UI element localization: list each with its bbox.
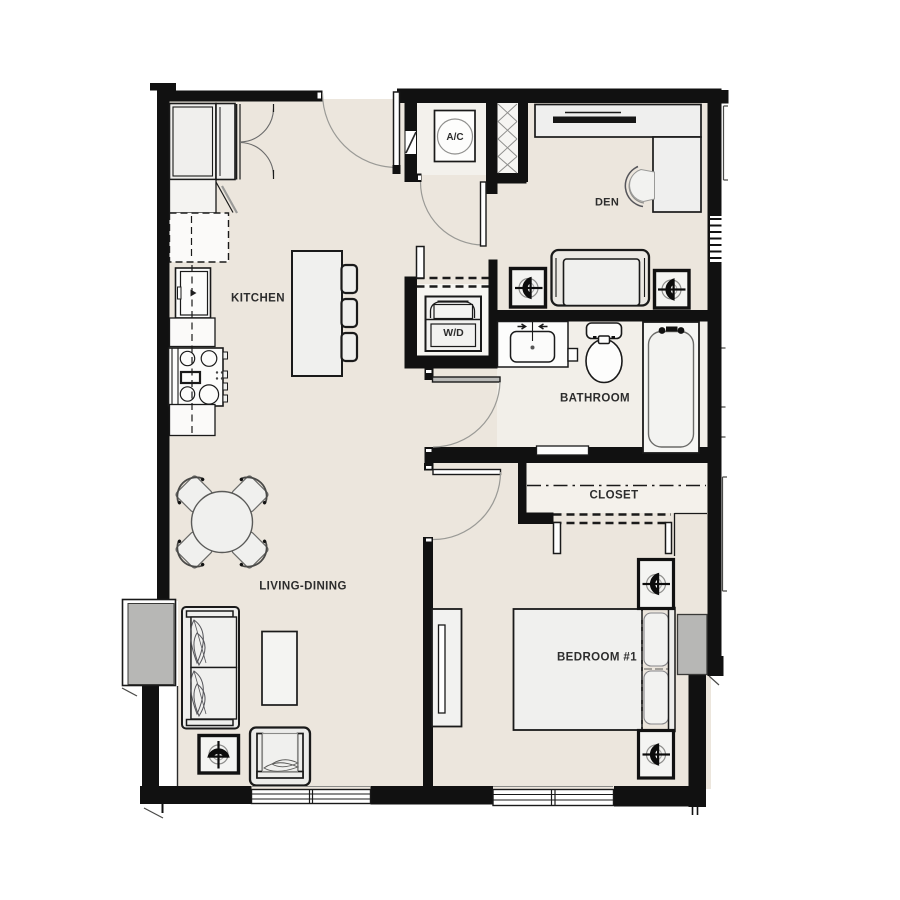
svg-text:BATHROOM: BATHROOM [560,393,630,405]
svg-text:W/D: W/D [443,327,464,339]
svg-text:A/C: A/C [446,132,463,143]
svg-text:DEN: DEN [595,197,619,209]
svg-text:LIVING-DINING: LIVING-DINING [259,581,347,593]
svg-text:BEDROOM #1: BEDROOM #1 [557,652,637,664]
svg-text:CLOSET: CLOSET [589,490,638,502]
svg-text:KITCHEN: KITCHEN [231,293,285,305]
